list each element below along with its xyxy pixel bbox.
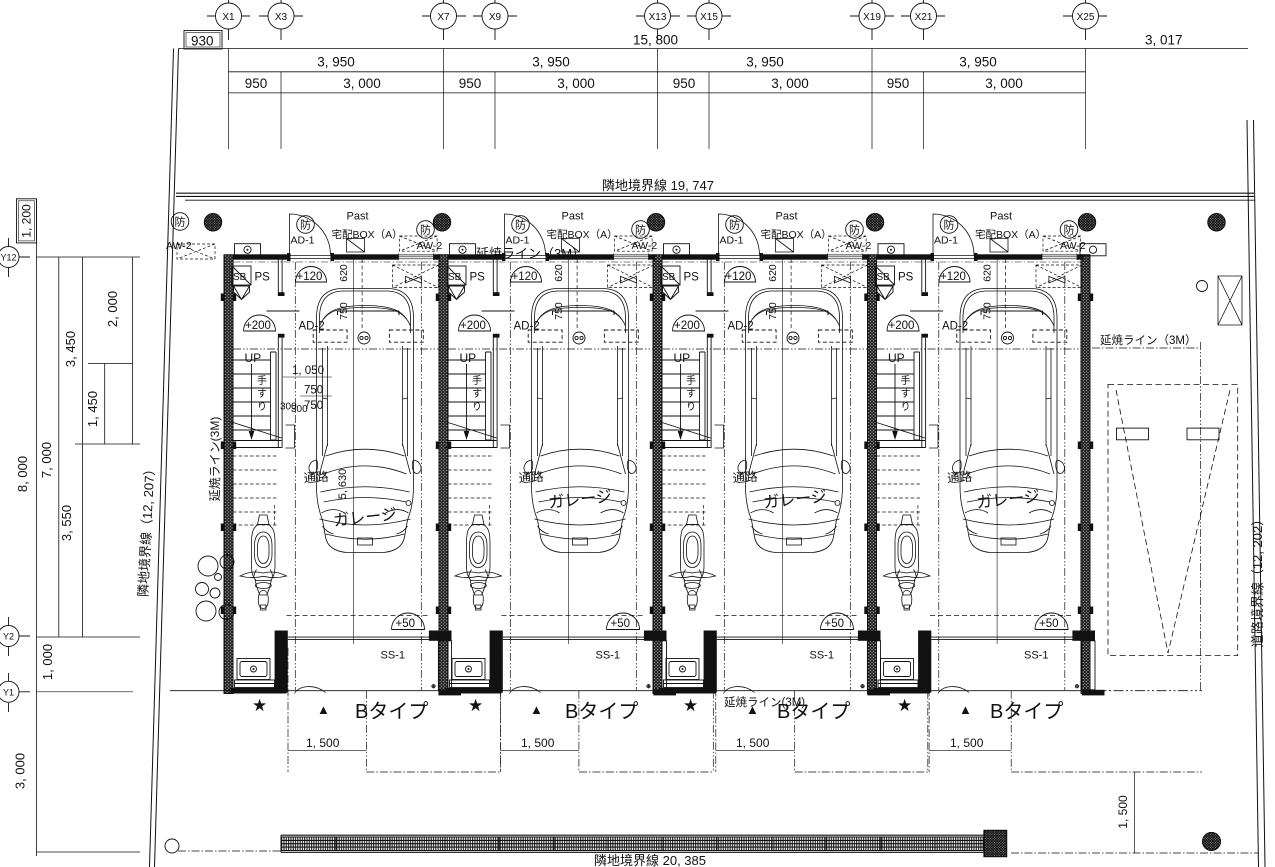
svg-text:3, 000: 3, 000 — [557, 76, 595, 91]
svg-text:X3: X3 — [275, 12, 288, 23]
svg-text:Bタイプ: Bタイプ — [990, 700, 1063, 723]
svg-text:2, 000: 2, 000 — [105, 291, 120, 327]
svg-text:1, 500: 1, 500 — [1116, 795, 1130, 829]
svg-text:ガレージ: ガレージ — [333, 505, 398, 530]
svg-text:1, 500: 1, 500 — [950, 736, 984, 750]
svg-text:8, 000: 8, 000 — [15, 456, 30, 492]
svg-text:X1: X1 — [222, 12, 235, 23]
svg-text:Y2: Y2 — [3, 632, 14, 642]
svg-text:★: ★ — [468, 696, 483, 715]
svg-text:ガレージ: ガレージ — [976, 487, 1041, 512]
svg-text:Y1: Y1 — [3, 687, 14, 697]
svg-text:Bタイプ: Bタイプ — [355, 700, 428, 723]
svg-text:X15: X15 — [700, 12, 718, 23]
svg-text:X25: X25 — [1077, 12, 1095, 23]
svg-text:延焼ライン(3M): 延焼ライン(3M) — [724, 696, 805, 709]
svg-text:ガレージ: ガレージ — [548, 487, 613, 512]
svg-text:Y12: Y12 — [0, 253, 16, 263]
svg-text:3, 950: 3, 950 — [746, 55, 784, 70]
svg-text:▲: ▲ — [959, 702, 972, 717]
svg-text:X19: X19 — [863, 12, 881, 23]
svg-text:1, 500: 1, 500 — [736, 736, 770, 750]
svg-text:3, 000: 3, 000 — [13, 753, 28, 789]
svg-text:★: ★ — [252, 696, 267, 715]
svg-text:1, 450: 1, 450 — [85, 391, 100, 427]
svg-text:950: 950 — [887, 76, 910, 91]
svg-text:道路境界線（12, 202）: 道路境界線（12, 202） — [1250, 513, 1265, 647]
svg-text:3, 950: 3, 950 — [532, 55, 570, 70]
svg-text:930: 930 — [191, 34, 214, 49]
svg-text:隣地境界線 19, 747: 隣地境界線 19, 747 — [602, 178, 714, 193]
svg-text:★: ★ — [683, 696, 698, 715]
svg-text:▲: ▲ — [530, 702, 543, 717]
svg-text:750: 750 — [304, 400, 323, 412]
svg-text:3, 550: 3, 550 — [59, 505, 74, 541]
svg-text:3, 000: 3, 000 — [771, 76, 809, 91]
svg-text:1, 200: 1, 200 — [20, 204, 34, 238]
svg-text:15, 800: 15, 800 — [633, 33, 678, 48]
svg-text:X21: X21 — [915, 12, 933, 23]
svg-text:5, 630: 5, 630 — [337, 469, 349, 500]
svg-text:X13: X13 — [649, 12, 667, 23]
svg-text:1, 500: 1, 500 — [306, 736, 340, 750]
svg-text:1, 050: 1, 050 — [292, 365, 324, 377]
svg-text:3, 950: 3, 950 — [317, 55, 355, 70]
svg-text:Bタイプ: Bタイプ — [565, 700, 638, 723]
svg-text:防: 防 — [175, 215, 186, 229]
svg-text:1, 000: 1, 000 — [40, 644, 55, 680]
svg-text:950: 950 — [245, 76, 268, 91]
svg-text:3, 017: 3, 017 — [1145, 33, 1183, 48]
svg-text:延焼ライン（3M）: 延焼ライン（3M） — [1100, 334, 1196, 347]
svg-text:▲: ▲ — [317, 702, 330, 717]
svg-text:AW-2: AW-2 — [166, 240, 192, 252]
svg-text:X9: X9 — [489, 12, 502, 23]
svg-text:950: 950 — [673, 76, 696, 91]
svg-text:1, 500: 1, 500 — [521, 736, 555, 750]
svg-text:750: 750 — [304, 385, 323, 397]
svg-text:隣地境界線 20, 385: 隣地境界線 20, 385 — [594, 853, 706, 867]
svg-text:3, 000: 3, 000 — [985, 76, 1023, 91]
svg-text:ガレージ: ガレージ — [763, 487, 828, 512]
svg-text:延焼ライン(3M): 延焼ライン(3M) — [208, 417, 222, 502]
svg-text:X7: X7 — [437, 12, 450, 23]
svg-text:延焼ライン（3M）: 延焼ライン（3M） — [476, 246, 585, 261]
svg-text:950: 950 — [459, 76, 482, 91]
svg-text:3, 450: 3, 450 — [63, 331, 78, 367]
svg-text:3, 000: 3, 000 — [343, 76, 381, 91]
svg-text:7, 000: 7, 000 — [39, 442, 54, 478]
svg-text:3, 950: 3, 950 — [959, 55, 997, 70]
svg-text:★: ★ — [897, 696, 912, 715]
svg-text:隣地境界線（12, 207）: 隣地境界線（12, 207） — [136, 462, 158, 597]
